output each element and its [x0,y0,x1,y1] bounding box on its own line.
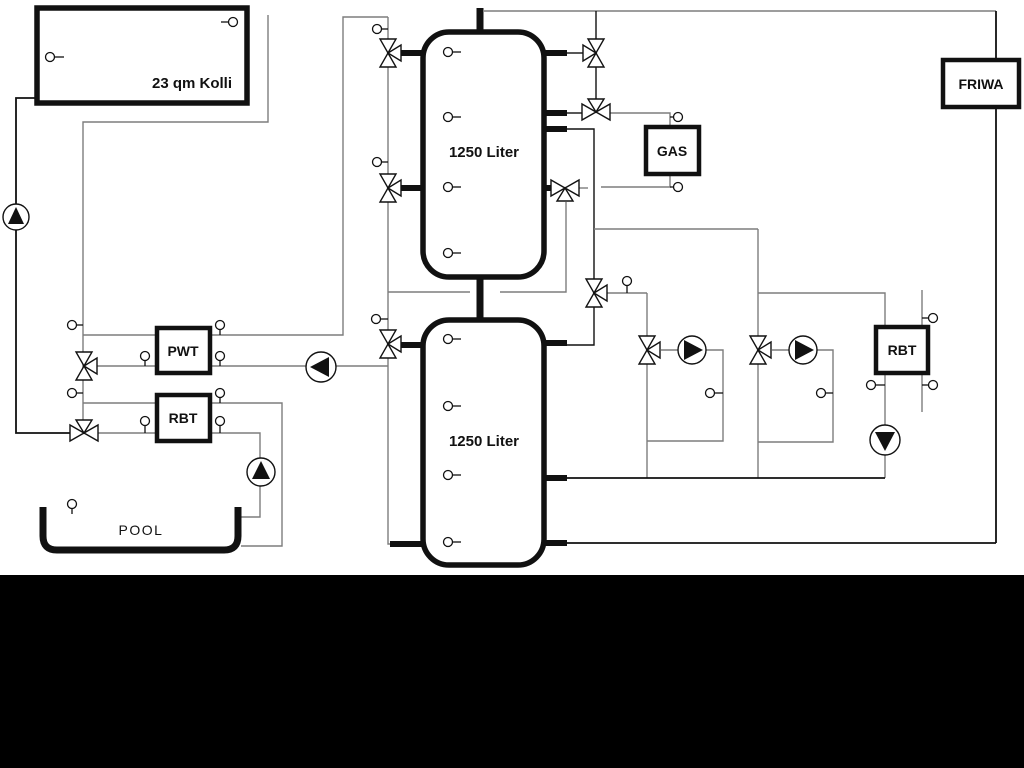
diagram-canvas: 23 qm Kolli 1250 Liter 1250 Liter GAS FR… [0,0,1024,768]
pipe-rbt2-supply [758,293,885,327]
tank1-label: 1250 Liter [449,144,519,161]
collector-label: 23 qm Kolli [152,75,232,92]
gas-label: GAS [657,143,687,159]
tank2-label: 1250 Liter [449,433,519,450]
pwt-label: PWT [167,343,199,359]
pipe-tank-left-column [388,17,405,544]
friwa-label: FRIWA [958,76,1003,92]
rbt-heating-label: RBT [888,342,917,358]
rbt-pool-label: RBT [169,410,198,426]
bottom-black-bar [0,575,1024,768]
pipe-boiler-column [567,129,594,345]
pool-label: POOL [119,522,164,538]
hydraulic-scheme-diagram: 23 qm Kolli 1250 Liter 1250 Liter GAS FR… [0,0,1024,768]
pipe-solar-line [16,98,71,433]
